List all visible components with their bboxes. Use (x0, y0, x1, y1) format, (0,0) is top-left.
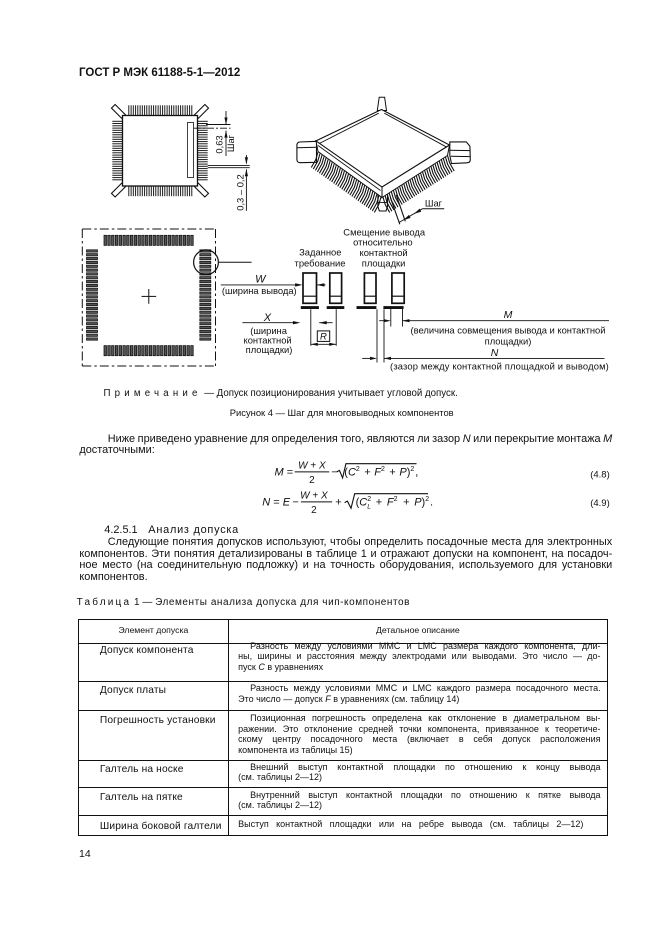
svg-text:площадки: площадки (362, 258, 406, 269)
svg-text:Шаг: Шаг (425, 198, 443, 209)
svg-text:M: M (504, 309, 513, 321)
svg-text:контактной: контактной (360, 247, 408, 258)
svg-text:W + X: W + X (300, 491, 328, 502)
svg-text:относительно: относительно (353, 236, 412, 247)
svg-text:0,63: 0,63 (213, 135, 224, 153)
svg-text:площадки): площадки) (246, 344, 293, 355)
svg-text:0,3 – 0,2: 0,3 – 0,2 (234, 174, 245, 211)
svg-text:(CL2 + F2 + P)2 .: (CL2 + F2 + P)2 . (356, 496, 434, 511)
svg-text:X: X (263, 312, 272, 324)
svg-text:N: N (491, 347, 499, 359)
svg-text:(ширина вывода): (ширина вывода) (222, 285, 297, 296)
svg-text:W + X: W + X (298, 461, 326, 472)
svg-text:−: − (331, 467, 337, 479)
svg-text:Шаг: Шаг (225, 134, 236, 152)
svg-text:+: + (335, 497, 341, 509)
svg-text:2: 2 (309, 475, 315, 486)
svg-text:M =: M = (275, 467, 297, 479)
svg-text:площадки): площадки) (485, 335, 532, 346)
svg-text:Заданное: Заданное (299, 247, 341, 258)
svg-text:R: R (320, 331, 327, 342)
svg-text:2: 2 (311, 505, 317, 516)
svg-text:требование: требование (295, 258, 346, 269)
svg-text:W: W (255, 274, 267, 286)
svg-text:(величина совмещения вывода и: (величина совмещения вывода и контактной (410, 325, 605, 336)
svg-text:(C2 + F2 + P)2 ,: (C2 + F2 + P)2 , (344, 466, 418, 479)
svg-text:(зазор между контактной площад: (зазор между контактной площадкой и выво… (390, 361, 609, 372)
svg-text:(4.9): (4.9) (590, 498, 610, 509)
svg-text:N = E −: N = E − (262, 497, 302, 509)
svg-text:(4.8): (4.8) (590, 469, 610, 480)
